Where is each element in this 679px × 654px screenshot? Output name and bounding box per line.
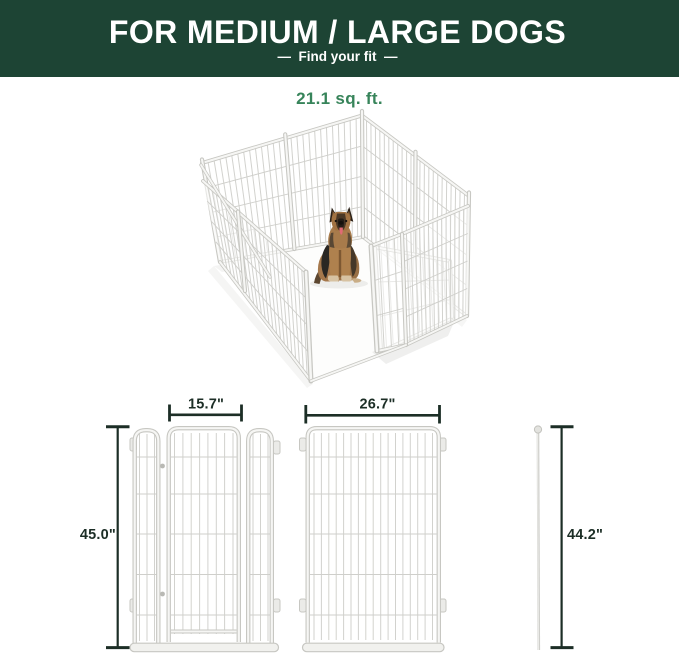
svg-text:26.7": 26.7"	[359, 397, 395, 413]
svg-text:45.0": 45.0"	[80, 527, 116, 543]
svg-text:15.7": 15.7"	[188, 397, 224, 413]
svg-text:44.2": 44.2"	[567, 527, 603, 543]
